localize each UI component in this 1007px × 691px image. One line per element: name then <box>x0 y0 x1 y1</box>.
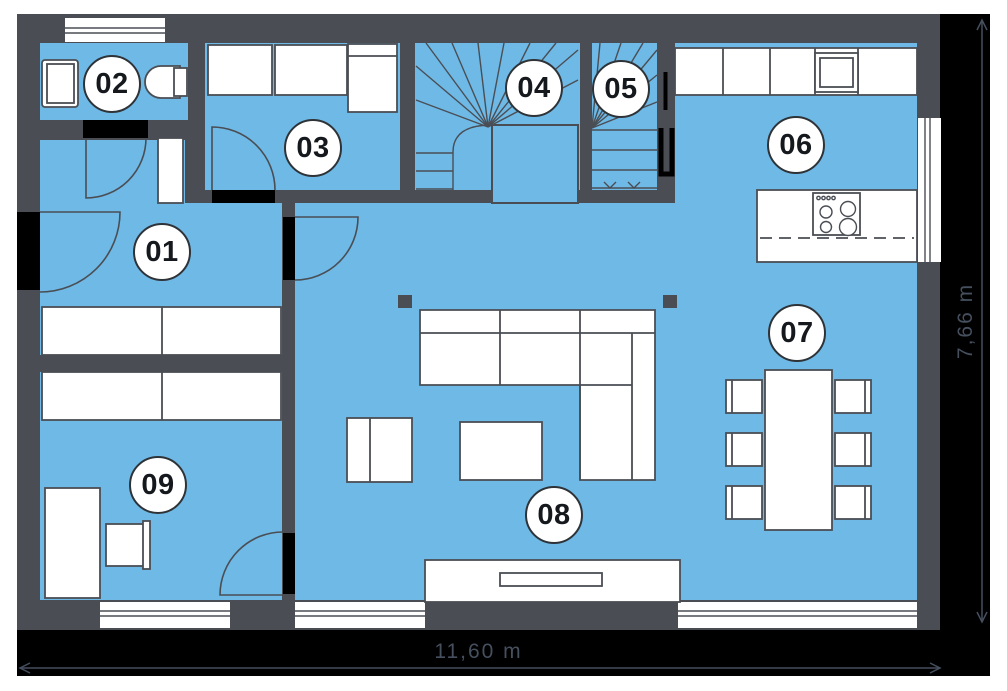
desk <box>45 488 100 598</box>
window-bottom-right <box>678 602 917 628</box>
window-top <box>65 18 165 42</box>
toilet <box>145 66 187 98</box>
dimension-height-label: 7,66 m <box>954 283 978 359</box>
column-right <box>663 295 677 308</box>
tv <box>500 573 602 586</box>
bedroom-cabinets <box>208 45 347 95</box>
floor-plan-graphic <box>0 0 1007 691</box>
room-label-04: 04 <box>505 59 563 117</box>
wc-door-opening <box>83 120 148 138</box>
dining-chairs-left <box>726 380 762 519</box>
kitchen-counter <box>675 48 917 95</box>
bed <box>348 44 397 112</box>
dining-set <box>726 370 871 530</box>
bedroom-door-opening <box>212 190 275 203</box>
room-label-07: 07 <box>768 304 826 362</box>
hall-living-door-opening <box>283 217 295 280</box>
room-label-01: 01 <box>133 223 191 281</box>
office-door-opening <box>283 533 295 594</box>
entrance-door <box>17 212 40 290</box>
floor-stairs-04-landing <box>492 190 578 203</box>
window-bottom-middle <box>295 602 425 628</box>
tv-sideboard <box>425 560 680 602</box>
dining-table <box>765 370 832 530</box>
room-label-03: 03 <box>284 119 342 177</box>
kitchen-island <box>757 190 917 262</box>
window-right <box>918 118 941 262</box>
armchair <box>347 418 412 482</box>
radiator <box>158 138 183 203</box>
hall-wardrobe <box>42 307 281 355</box>
floor-stairs-04 <box>415 43 580 190</box>
office-cabinet <box>42 372 281 420</box>
bathroom-sink <box>42 60 78 107</box>
room-label-02: 02 <box>83 55 141 113</box>
stove <box>813 193 860 236</box>
kitchen-sink <box>815 53 858 92</box>
room-label-08: 08 <box>525 486 583 544</box>
desk-chair <box>106 521 150 569</box>
dining-chairs-right <box>835 380 871 519</box>
coffee-table <box>460 422 542 480</box>
column-left <box>398 295 412 308</box>
floor-plan: 01 02 03 04 05 06 07 08 09 11,60 m 7,66 … <box>0 0 1007 691</box>
window-bottom-left <box>100 602 230 628</box>
room-label-09: 09 <box>129 456 187 514</box>
room-label-05: 05 <box>592 60 650 118</box>
room-label-06: 06 <box>767 116 825 174</box>
dimension-width-label: 11,60 m <box>17 640 940 664</box>
